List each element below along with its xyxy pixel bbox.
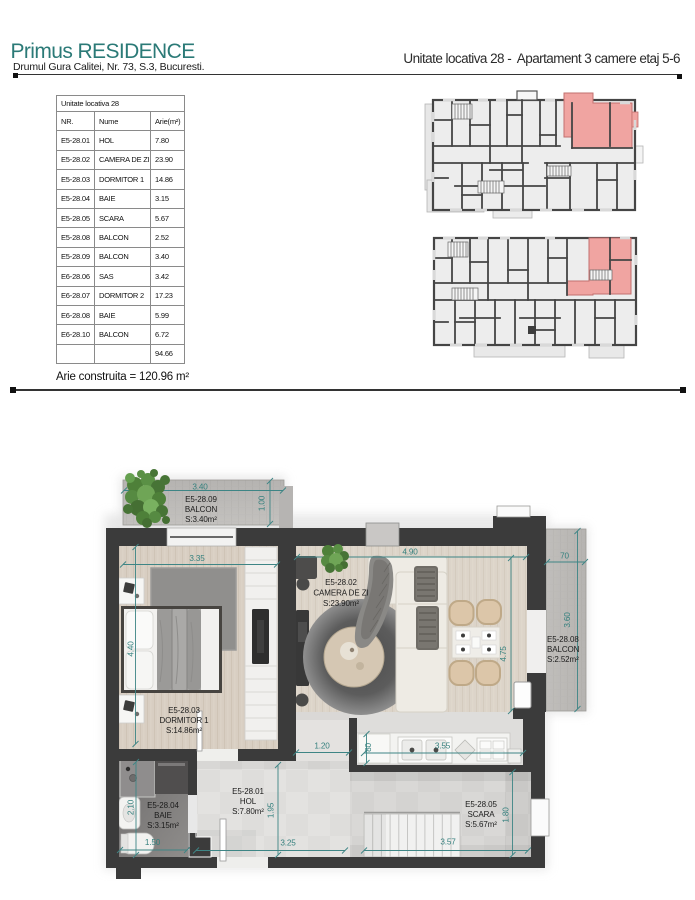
svg-text:E5-28.01: E5-28.01: [232, 787, 264, 796]
svg-text:S:14.86m²: S:14.86m²: [166, 726, 202, 735]
svg-text:3.25: 3.25: [280, 839, 296, 848]
svg-text:S:5.67m²: S:5.67m²: [465, 820, 497, 829]
svg-text:1.50: 1.50: [145, 838, 161, 847]
svg-text:3.40: 3.40: [192, 483, 208, 492]
svg-text:2.10: 2.10: [127, 799, 136, 815]
svg-text:1.80: 1.80: [502, 807, 511, 823]
svg-text:3.57: 3.57: [440, 838, 456, 847]
svg-text:S:23.90m²: S:23.90m²: [323, 599, 359, 608]
svg-text:1.00: 1.00: [258, 495, 267, 511]
svg-text:E5-28.02: E5-28.02: [325, 578, 357, 587]
svg-text:DORMITOR 1: DORMITOR 1: [159, 716, 209, 725]
svg-text:E5-28.04: E5-28.04: [147, 801, 179, 810]
svg-text:4.75: 4.75: [499, 646, 508, 662]
svg-text:3.60: 3.60: [563, 612, 572, 628]
svg-text:S:3.15m²: S:3.15m²: [147, 821, 179, 830]
svg-text:80: 80: [364, 743, 373, 752]
svg-text:CAMERA DE ZI: CAMERA DE ZI: [313, 589, 368, 598]
svg-text:S:7.80m²: S:7.80m²: [232, 807, 264, 816]
svg-text:BAIE: BAIE: [154, 811, 172, 820]
svg-text:SCARA: SCARA: [467, 810, 495, 819]
svg-text:3.55: 3.55: [435, 742, 451, 751]
svg-text:HOL: HOL: [240, 797, 257, 806]
svg-text:3.35: 3.35: [189, 554, 205, 563]
svg-text:1.20: 1.20: [314, 742, 330, 751]
svg-text:E5-28.03: E5-28.03: [168, 706, 200, 715]
svg-text:E5-28.05: E5-28.05: [465, 800, 497, 809]
svg-text:S:2.52m²: S:2.52m²: [547, 655, 579, 664]
svg-text:70: 70: [560, 552, 569, 561]
svg-text:BALCON: BALCON: [185, 505, 218, 514]
svg-text:4.90: 4.90: [402, 548, 418, 557]
svg-text:E5-28.09: E5-28.09: [185, 495, 217, 504]
svg-text:4.40: 4.40: [127, 641, 136, 657]
svg-text:E5-28.08: E5-28.08: [547, 635, 579, 644]
svg-text:1.95: 1.95: [267, 802, 276, 818]
svg-text:BALCON: BALCON: [547, 645, 580, 654]
svg-text:S:3.40m²: S:3.40m²: [185, 515, 217, 524]
